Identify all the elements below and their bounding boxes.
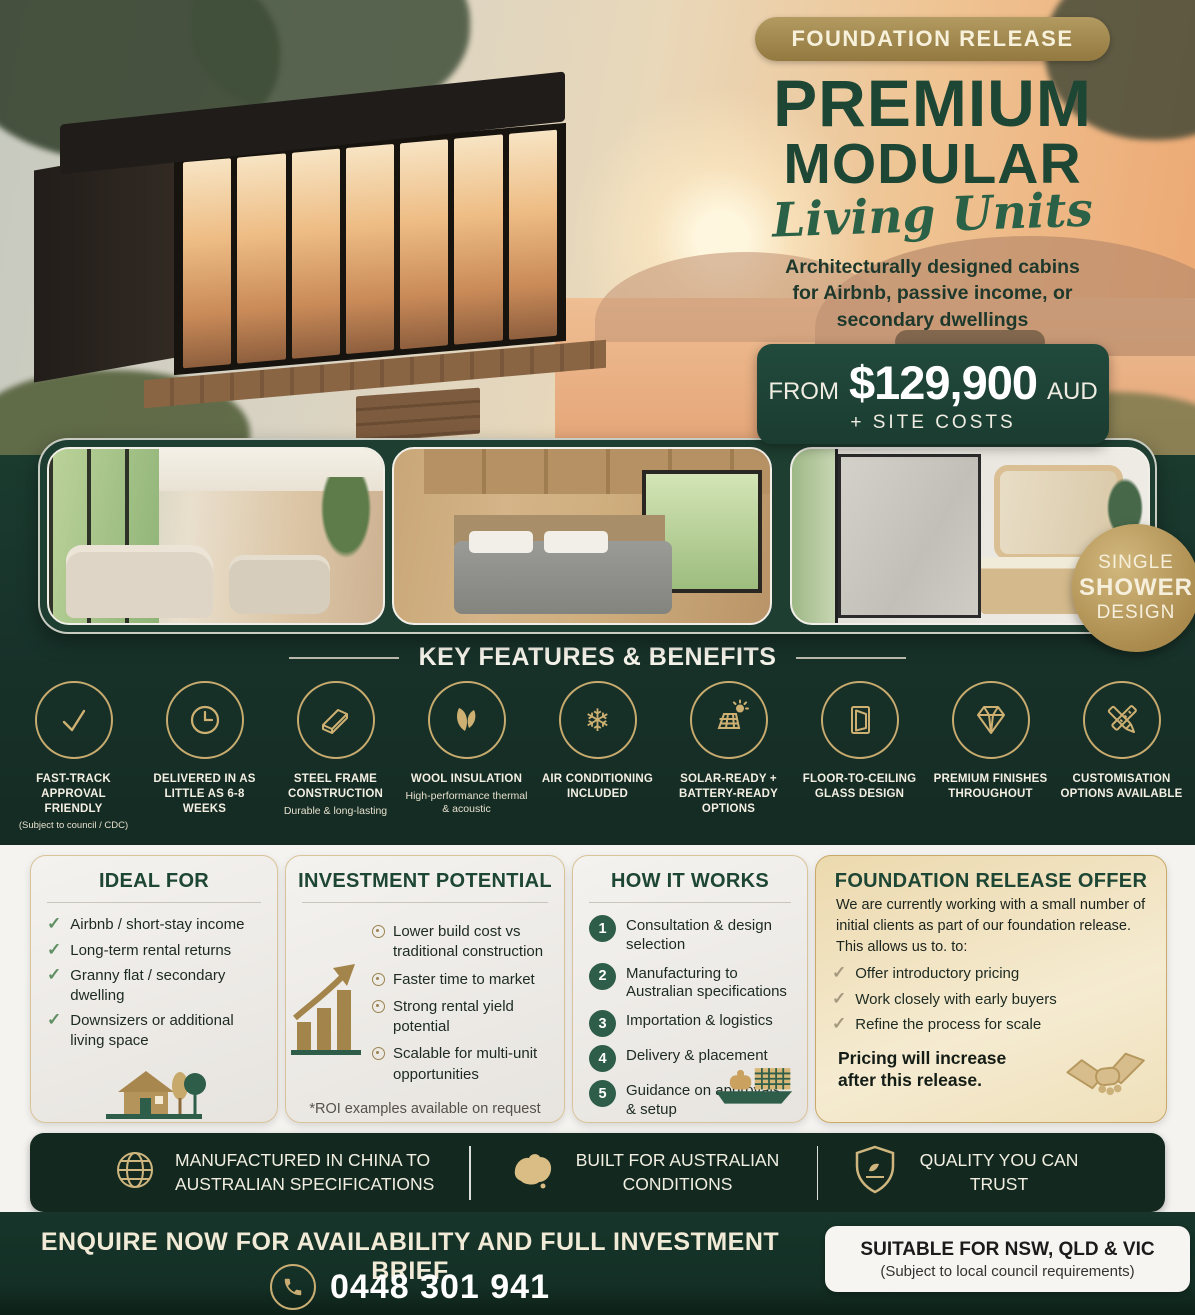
check-icon: ✓ xyxy=(47,1011,61,1030)
roi-footnote: *ROI examples available on request xyxy=(286,1101,564,1117)
window-icon xyxy=(821,681,899,759)
growth-chart-icon xyxy=(286,915,372,1092)
features-heading-row: KEY FEATURES & BENEFITS xyxy=(0,643,1195,672)
feature-steel-frame: STEEL FRAME CONSTRUCTION Durable & long-… xyxy=(270,681,401,832)
house-trees-icon xyxy=(31,1058,277,1125)
photo-strip: SINGLE SHOWER DESIGN xyxy=(38,438,1157,634)
how-it-works-heading: HOW IT WORKS xyxy=(583,870,797,893)
feature-finishes: PREMIUM FINISHES THROUGHOUT xyxy=(925,681,1056,832)
check-icon: ✓ xyxy=(47,966,61,985)
hero-subtitle: Architecturally designed cabins for Airb… xyxy=(770,254,1095,333)
feature-aircon: ❄ AIR CONDITIONING INCLUDED xyxy=(532,681,663,832)
bullet-icon xyxy=(372,973,385,986)
how-it-works-card: HOW IT WORKS 1Consultation & design sele… xyxy=(572,855,808,1123)
divider xyxy=(817,1146,819,1200)
info-manufactured: MANUFACTURED IN CHINA TO AUSTRALIAN SPEC… xyxy=(111,1146,435,1199)
features-row: FAST-TRACK APPROVAL FRIENDLY (Subject to… xyxy=(8,681,1187,832)
price-prefix: FROM xyxy=(768,378,839,406)
feature-customisation: CUSTOMISATION OPTIONS AVAILABLE xyxy=(1056,681,1187,832)
wool-leaves-icon xyxy=(428,681,506,759)
cabin-photo xyxy=(26,96,591,402)
divider-line xyxy=(796,657,906,659)
pencil-ruler-icon xyxy=(1083,681,1161,759)
list-item: Strong rental yield potential xyxy=(372,997,556,1038)
suitable-note: (Subject to local council requirements) xyxy=(880,1263,1134,1280)
offer-heading: FOUNDATION RELEASE OFFER xyxy=(826,870,1156,893)
feature-insulation: WOOL INSULATION High-performance thermal… xyxy=(401,681,532,832)
price-note: + SITE COSTS xyxy=(850,412,1015,434)
step-item: 1Consultation & design selection xyxy=(589,915,807,955)
info-bar: MANUFACTURED IN CHINA TO AUSTRALIAN SPEC… xyxy=(30,1133,1165,1212)
divider xyxy=(589,902,791,903)
phone-icon xyxy=(270,1264,316,1310)
hero-section: FOUNDATION RELEASE PREMIUM MODULAR Livin… xyxy=(0,0,1195,470)
suitable-title: SUITABLE FOR NSW, QLD & VIC xyxy=(860,1239,1154,1261)
solar-panel-icon xyxy=(690,681,768,759)
price-amount: $129,900 xyxy=(849,355,1037,410)
living-room-photo xyxy=(47,447,385,625)
list-item: ✓Offer introductory pricing xyxy=(832,964,1166,984)
handshake-icon xyxy=(1061,1045,1153,1115)
step-item: 2Manufacturing to Australian specificati… xyxy=(589,963,807,1003)
step-item: 3Importation & logistics xyxy=(589,1010,807,1037)
list-item: ✓Airbnb / short-stay income xyxy=(47,915,277,935)
phone-row: 0448 301 941 xyxy=(10,1264,810,1310)
bullet-icon xyxy=(372,1000,385,1013)
globe-icon xyxy=(111,1146,159,1199)
bullet-icon xyxy=(372,1047,385,1060)
list-item: Scalable for multi-unit opportunities xyxy=(372,1044,556,1085)
ideal-for-heading: IDEAL FOR xyxy=(41,870,267,893)
snowflake-icon: ❄ xyxy=(559,681,637,759)
title-premium: PREMIUM xyxy=(700,70,1165,136)
phone-number: 0448 301 941 xyxy=(330,1268,550,1307)
step-number: 1 xyxy=(589,915,616,942)
features-heading: KEY FEATURES & BENEFITS xyxy=(419,643,777,672)
divider xyxy=(302,902,548,903)
feature-delivery: DELIVERED IN AS LITTLE AS 6-8 WEEKS xyxy=(139,681,270,832)
list-item: ✓Granny flat / secondary dwelling xyxy=(47,966,277,1005)
flyer-page: FOUNDATION RELEASE PREMIUM MODULAR Livin… xyxy=(0,0,1195,1315)
list-item: Faster time to market xyxy=(372,970,556,990)
diamond-icon xyxy=(952,681,1030,759)
offer-card: FOUNDATION RELEASE OFFER We are currentl… xyxy=(815,855,1167,1123)
single-shower-design-badge: SINGLE SHOWER DESIGN xyxy=(1072,524,1195,652)
list-item: ✓Refine the process for scale xyxy=(832,1015,1166,1035)
bullet-icon xyxy=(372,925,385,938)
step-number: 5 xyxy=(589,1080,616,1107)
clock-icon xyxy=(166,681,244,759)
shield-icon xyxy=(852,1144,898,1201)
list-item: ✓Long-term rental returns xyxy=(47,941,277,961)
check-icon: ✓ xyxy=(832,1015,846,1034)
list-item: ✓Work closely with early buyers xyxy=(832,990,1166,1010)
divider-line xyxy=(289,657,399,659)
suitable-box: SUITABLE FOR NSW, QLD & VIC (Subject to … xyxy=(825,1226,1190,1292)
list-item: Lower build cost vs traditional construc… xyxy=(372,922,556,963)
info-built: BUILT FOR AUSTRALIAN CONDITIONS xyxy=(505,1148,783,1197)
check-icon: ✓ xyxy=(47,941,61,960)
investment-card: INVESTMENT POTENTIAL Lower build cost vs… xyxy=(285,855,565,1123)
step-number: 3 xyxy=(589,1010,616,1037)
cargo-ship-icon xyxy=(709,1061,797,1114)
foundation-release-badge: FOUNDATION RELEASE xyxy=(755,17,1110,61)
bedroom-photo xyxy=(392,447,772,625)
investment-heading: INVESTMENT POTENTIAL xyxy=(296,870,554,893)
info-quality: QUALITY YOU CAN TRUST xyxy=(852,1144,1084,1201)
divider xyxy=(47,902,261,903)
price-box: FROM $129,900 AUD + SITE COSTS xyxy=(757,344,1109,444)
feature-fast-track: FAST-TRACK APPROVAL FRIENDLY (Subject to… xyxy=(8,681,139,832)
check-icon: ✓ xyxy=(832,990,846,1009)
ideal-for-card: IDEAL FOR ✓Airbnb / short-stay income ✓L… xyxy=(30,855,278,1123)
footer-section: ENQUIRE NOW FOR AVAILABILITY AND FULL IN… xyxy=(0,1212,1195,1315)
step-number: 2 xyxy=(589,963,616,990)
offer-intro: We are currently working with a small nu… xyxy=(836,895,1146,958)
feature-solar: SOLAR-READY + BATTERY-READY OPTIONS xyxy=(663,681,794,832)
pricing-highlight: Pricing will increase after this release… xyxy=(838,1047,1048,1093)
price-currency: AUD xyxy=(1047,378,1098,406)
check-icon xyxy=(35,681,113,759)
step-number: 4 xyxy=(589,1045,616,1072)
check-icon: ✓ xyxy=(47,915,61,934)
steel-beam-icon xyxy=(297,681,375,759)
australia-map-icon xyxy=(505,1148,557,1197)
list-item: ✓Downsizers or additional living space xyxy=(47,1011,277,1050)
divider xyxy=(469,1146,471,1200)
feature-glass: FLOOR-TO-CEILING GLASS DESIGN xyxy=(794,681,925,832)
check-icon: ✓ xyxy=(832,964,846,983)
